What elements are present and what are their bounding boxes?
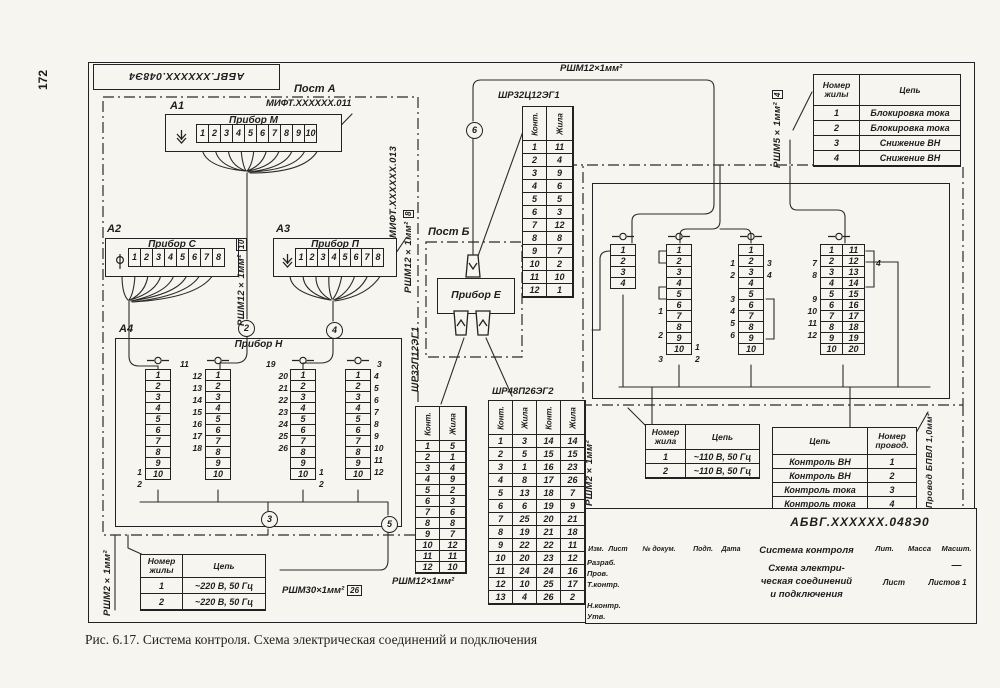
table-cell: 9 bbox=[489, 539, 513, 552]
wire-number bbox=[720, 353, 735, 365]
title-block-scale-value: — bbox=[939, 560, 974, 571]
wire-number bbox=[876, 281, 891, 293]
table-cell: 11 bbox=[489, 565, 513, 578]
table-cell: 1 bbox=[523, 141, 547, 154]
wire-number: 4 bbox=[876, 257, 891, 269]
circle-pin-icon bbox=[114, 254, 126, 270]
wire-number: 3 bbox=[767, 257, 782, 269]
connector-table-shr48: Конт. Жила Конт. Жила 1 3 14 14 2 5 15 1… bbox=[488, 400, 586, 605]
col-header: Конт. bbox=[416, 407, 440, 441]
wire-number bbox=[802, 245, 817, 257]
table-cell: 1 bbox=[416, 441, 440, 452]
table-cell: 13 bbox=[489, 591, 513, 604]
wire-number bbox=[319, 370, 335, 382]
wire-number: 20 bbox=[262, 370, 288, 382]
title-block-scheme-line2: ческая соединений bbox=[747, 576, 866, 587]
wire-number: 24 bbox=[262, 418, 288, 430]
wire-number: 2 bbox=[319, 478, 335, 490]
a4-strip4-right-numbers: 456789101112 bbox=[374, 370, 394, 490]
device-a3-ref: А3 bbox=[276, 223, 290, 235]
a4-strip2: 12345678910 bbox=[205, 370, 231, 480]
table-cell: 3 bbox=[416, 463, 440, 474]
wire-number: 9 bbox=[802, 293, 817, 305]
plug-arrow-icon bbox=[175, 130, 188, 146]
table-header: Номер жилы bbox=[141, 555, 183, 577]
wire-number bbox=[319, 382, 335, 394]
switch-icon bbox=[147, 356, 169, 365]
wire-number bbox=[176, 478, 202, 490]
col-header-text: Жила bbox=[520, 407, 529, 429]
title-block-lit-header: Лит. bbox=[869, 544, 900, 553]
terminal-cell: 8 bbox=[372, 248, 384, 267]
table-cell: 17 bbox=[561, 578, 585, 591]
terminal-cell: 10 bbox=[666, 343, 692, 355]
table-row: 8 8 bbox=[416, 518, 466, 529]
table-cell: 5 bbox=[523, 193, 547, 206]
wire-number: 14 bbox=[176, 394, 202, 406]
cable-junction-4: 4 bbox=[326, 322, 343, 339]
corner-stamp: АБВГ.ХХХХХХ.048Э4 bbox=[93, 64, 280, 90]
a4-strip1-left-numbers: 12 bbox=[126, 370, 142, 490]
wire-number: 10 bbox=[374, 442, 394, 454]
device-a2-ref: А2 bbox=[107, 223, 121, 235]
table-cell: 4 bbox=[489, 474, 513, 487]
wire-number: 17 bbox=[176, 430, 202, 442]
table-row: 2 1 bbox=[416, 452, 466, 463]
table-cell: 1 bbox=[814, 106, 860, 120]
table-cell: 1 bbox=[646, 450, 686, 463]
cable-label-text: РШМ12×1мм² bbox=[236, 254, 247, 326]
wire-number bbox=[319, 394, 335, 406]
device-a1-terminals: 12345678910 bbox=[197, 124, 317, 143]
terminal-cell: 10 bbox=[304, 124, 317, 143]
connector-plug-icon bbox=[464, 254, 482, 278]
table-row: 5 5 bbox=[523, 193, 573, 206]
table-cell: ~110 В, 50 Гц bbox=[686, 464, 759, 477]
table-row: Контроль ВН 2 bbox=[773, 469, 916, 483]
title-block-col-izm: Изм. bbox=[586, 546, 606, 553]
col-header-text: Конт. bbox=[544, 406, 553, 430]
col-header: Жила bbox=[440, 407, 466, 441]
table-control: Цепь Номер провод. Контроль ВН 1 Контрол… bbox=[772, 427, 917, 512]
wire-number: 10 bbox=[802, 305, 817, 317]
title-block-doc-number: АБВГ.ХХХХХХ.048Э0 bbox=[750, 515, 970, 529]
device-a4-title: Прибор Н bbox=[116, 339, 401, 350]
connector-label-text: ШР32П12ЭГ1 bbox=[410, 326, 421, 392]
table-cell: Контроль тока bbox=[773, 483, 868, 496]
device-a1-ref: А1 bbox=[170, 100, 184, 112]
wire-number bbox=[648, 281, 663, 293]
table-cell: 25 bbox=[513, 513, 537, 526]
a4-strip2-head: 11 bbox=[180, 359, 189, 369]
wire-number bbox=[648, 257, 663, 269]
title-block-system: Система контроля bbox=[747, 545, 866, 556]
wire-number bbox=[126, 370, 142, 382]
wire-number: 16 bbox=[176, 418, 202, 430]
table-cell: 13 bbox=[513, 487, 537, 500]
device-a1-doc-label: МИФТ.ХХХХХХ.011 bbox=[266, 98, 351, 109]
table-cell: 1 bbox=[489, 435, 513, 448]
wire-number bbox=[126, 442, 142, 454]
table-cell: 11 bbox=[416, 551, 440, 562]
table-row: 8 8 bbox=[523, 232, 573, 245]
table-cell: 23 bbox=[537, 552, 561, 565]
wire-number bbox=[876, 269, 891, 281]
a4-strip4-head: 3 bbox=[377, 359, 382, 369]
table-row: 2 ~110 В, 50 Гц bbox=[646, 464, 759, 478]
table-row: 11 10 bbox=[523, 271, 573, 284]
table-cell: 19 bbox=[513, 526, 537, 539]
table-cell: Блокировка тока bbox=[860, 121, 960, 135]
table-row: 6 3 bbox=[416, 496, 466, 507]
wire-number: 4 bbox=[720, 305, 735, 317]
title-block-col-doc: № докум. bbox=[630, 546, 688, 553]
table-cell: 7 bbox=[561, 487, 585, 500]
table-row: 3 9 bbox=[523, 167, 573, 180]
wire-number bbox=[319, 454, 335, 466]
table-row: 5 2 bbox=[416, 485, 466, 496]
wire-number bbox=[720, 245, 735, 257]
table-cell: 1 bbox=[547, 284, 573, 297]
table-row: 2 Блокировка тока bbox=[814, 121, 960, 136]
wire-number bbox=[802, 341, 817, 353]
connector-table-body: 1 5 2 1 3 4 4 9 5 2 6 3 7 6 8 8 bbox=[416, 441, 466, 573]
wire-number bbox=[648, 245, 663, 257]
title-block-role-prov: Пров. bbox=[587, 569, 608, 578]
table-row: 6 3 bbox=[523, 206, 573, 219]
terminal-cell: 10 bbox=[290, 468, 316, 480]
wire-number bbox=[767, 293, 782, 305]
cable-label-text: РШМ5×1мм² bbox=[772, 102, 783, 168]
wire-number: 1 bbox=[648, 305, 663, 317]
col-header-text: Конт. bbox=[530, 112, 539, 136]
cable-label-rshm12-top: РШМ12×1мм² bbox=[560, 63, 622, 74]
table-cell: 10 bbox=[489, 552, 513, 565]
table-cell: 6 bbox=[513, 500, 537, 513]
terminal-cell: 10 bbox=[738, 343, 764, 355]
table-cell: Контроль ВН bbox=[773, 455, 868, 468]
title-block-col-list: Лист bbox=[608, 546, 628, 553]
table-cell: 15 bbox=[561, 448, 585, 461]
wire-number: 22 bbox=[262, 394, 288, 406]
table-cell: 4 bbox=[513, 591, 537, 604]
table-body: Контроль ВН 1 Контроль ВН 2 Контроль ток… bbox=[773, 455, 916, 511]
table-cell: 8 bbox=[547, 232, 573, 245]
page-number: 172 bbox=[36, 56, 50, 90]
cable-junction-5: 5 bbox=[381, 516, 398, 533]
table-cell: 20 bbox=[537, 513, 561, 526]
table-row: 2 5 15 15 bbox=[489, 448, 585, 461]
wire-number: 6 bbox=[720, 329, 735, 341]
table-cell: 24 bbox=[513, 565, 537, 578]
wire-number bbox=[262, 478, 288, 490]
table-header: Номер жилы bbox=[814, 75, 860, 105]
wire-number bbox=[802, 281, 817, 293]
wire-number bbox=[767, 353, 782, 365]
table-row: 11 24 24 16 bbox=[489, 565, 585, 578]
table-row: 7 6 bbox=[416, 507, 466, 518]
connector-table-shr32-title: ШР32Ц12ЭГ1 bbox=[498, 90, 560, 101]
table-cell: 7 bbox=[416, 507, 440, 518]
cable-qty-box: 4 bbox=[772, 90, 783, 99]
wire-number: 6 bbox=[374, 394, 394, 406]
table-cell: 4 bbox=[814, 151, 860, 165]
table-row: 9 7 bbox=[523, 245, 573, 258]
right-strip3-right-numbers: 34 bbox=[767, 245, 782, 365]
table-cell: 7 bbox=[440, 529, 466, 540]
table-cell: 12 bbox=[547, 219, 573, 232]
table-cell: 1 bbox=[440, 452, 466, 463]
table-cell: 10 bbox=[547, 271, 573, 284]
connector-label-shr32p: ШР32П12ЭГ1 bbox=[410, 297, 421, 392]
cable-label-text: РШМ2×1мм² bbox=[102, 550, 113, 616]
a4-strip3-left-numbers: 20212223242526 bbox=[262, 370, 288, 490]
title-block-role-nkontr: Н.контр. bbox=[587, 601, 621, 610]
title-block-col-podp: Подп. bbox=[690, 546, 716, 553]
table-row: 3 Снижение ВН bbox=[814, 136, 960, 151]
wire-number: 9 bbox=[374, 430, 394, 442]
wire-number bbox=[176, 466, 202, 478]
table-cell: 4 bbox=[547, 154, 573, 167]
table-header: Цепь bbox=[860, 75, 960, 105]
cable-qty-box: 8 bbox=[403, 210, 414, 219]
a4-strip3-head: 19 bbox=[266, 359, 275, 369]
table-cell: 12 bbox=[489, 578, 513, 591]
wire-number: 2 bbox=[695, 353, 710, 365]
col-header-text: Жила bbox=[555, 113, 564, 135]
cable-label-rshm5-4: РШМ5×1мм² 4 bbox=[772, 64, 783, 168]
table-cell: 9 bbox=[547, 167, 573, 180]
table-cell: 16 bbox=[561, 565, 585, 578]
table-cell: 23 bbox=[561, 461, 585, 474]
wire-number: 11 bbox=[802, 317, 817, 329]
a4-strip4: 12345678910 bbox=[345, 370, 371, 480]
wire-number: 5 bbox=[374, 382, 394, 394]
table-cell: 21 bbox=[561, 513, 585, 526]
wire-number bbox=[767, 305, 782, 317]
table-row: 1 5 bbox=[416, 441, 466, 452]
table-cell: 21 bbox=[537, 526, 561, 539]
table-row: 10 2 bbox=[523, 258, 573, 271]
connector-table-shr48-title: ШР48П26ЭГ2 bbox=[492, 386, 554, 397]
table-cell: 8 bbox=[523, 232, 547, 245]
table-blocking: Номер жилы Цепь 1 Блокировка тока 2 Блок… bbox=[813, 74, 961, 167]
table-cell: 2 bbox=[523, 154, 547, 167]
cable-qty-box: 26 bbox=[347, 585, 362, 596]
wire-number: 2 bbox=[126, 478, 142, 490]
wire-number bbox=[876, 245, 891, 257]
device-a3-box: Прибор П 12345678 bbox=[273, 238, 397, 277]
table-cell: 11 bbox=[561, 539, 585, 552]
table-cell: 3 bbox=[523, 167, 547, 180]
table-cell: 25 bbox=[537, 578, 561, 591]
table-cell: 3 bbox=[547, 206, 573, 219]
cable-label-rshm12-bottom: РШМ12×1мм² bbox=[392, 576, 454, 587]
table-cell: 16 bbox=[537, 461, 561, 474]
wire-number: 12 bbox=[374, 466, 394, 478]
table-cell: 3 bbox=[814, 136, 860, 150]
table-cell: 11 bbox=[523, 271, 547, 284]
wire-number bbox=[695, 329, 710, 341]
table-cell: 8 bbox=[416, 518, 440, 529]
table-header: Цепь bbox=[773, 428, 868, 454]
table-row: 1 ~110 В, 50 Гц bbox=[646, 450, 759, 464]
table-cell: 7 bbox=[489, 513, 513, 526]
wire-number: 1 bbox=[319, 466, 335, 478]
table-cell: 11 bbox=[440, 551, 466, 562]
col-header: Жила bbox=[561, 401, 585, 435]
wire-number bbox=[126, 430, 142, 442]
table-cell: 24 bbox=[537, 565, 561, 578]
wire-number bbox=[126, 454, 142, 466]
terminal-cell: 10 bbox=[145, 468, 171, 480]
table-cell: 9 bbox=[561, 500, 585, 513]
table-row: 4 8 17 26 bbox=[489, 474, 585, 487]
col-header: Конт. bbox=[537, 401, 561, 435]
table-cell: 19 bbox=[537, 500, 561, 513]
table-cell: 7 bbox=[523, 219, 547, 232]
table-cell: 6 bbox=[523, 206, 547, 219]
post-b-label: Пост Б bbox=[428, 226, 469, 238]
col-header: Жила bbox=[547, 107, 573, 141]
cable-label-rshm30-26: РШМ30×1мм² 26 bbox=[282, 585, 362, 596]
wire-number bbox=[695, 293, 710, 305]
wire-number bbox=[767, 245, 782, 257]
table-cell: 2 bbox=[440, 485, 466, 496]
table-cell: 18 bbox=[561, 526, 585, 539]
terminal-cell: 4 bbox=[610, 277, 636, 289]
col-header-text: Конт. bbox=[423, 412, 432, 436]
terminal-cell: 10 bbox=[205, 468, 231, 480]
wire-number: 2 bbox=[720, 269, 735, 281]
table-cell: 20 bbox=[513, 552, 537, 565]
a4-strip2-left-numbers: 12131415161718 bbox=[176, 370, 202, 490]
table-cell: 26 bbox=[537, 591, 561, 604]
terminal-cell: 20 bbox=[842, 343, 865, 355]
wire-number bbox=[262, 454, 288, 466]
table-cell: 2 bbox=[646, 464, 686, 477]
table-cell: 2 bbox=[868, 469, 916, 482]
table-cell: 12 bbox=[440, 540, 466, 551]
wire-number: 4 bbox=[374, 370, 394, 382]
table-cell: 1 bbox=[868, 455, 916, 468]
connector-table-body: 1 11 2 4 3 9 4 6 5 5 6 3 7 12 8 bbox=[523, 141, 573, 297]
wire-number: 13 bbox=[176, 382, 202, 394]
title-block-scheme-line1: Схема электри- bbox=[747, 563, 866, 574]
post-a-label: Пост А bbox=[294, 83, 336, 95]
table-cell: 6 bbox=[489, 500, 513, 513]
wire-number: 3 bbox=[720, 293, 735, 305]
table-cell: 8 bbox=[513, 474, 537, 487]
table-cell: ~220 В, 50 Гц bbox=[183, 594, 265, 609]
device-a1-box: Прибор М 12345678910 bbox=[165, 114, 342, 152]
table-row: 4 9 bbox=[416, 474, 466, 485]
wire-number: 4 bbox=[767, 269, 782, 281]
table-cell: 3 bbox=[440, 496, 466, 507]
table-cell: 4 bbox=[440, 463, 466, 474]
col-header-text: Конт. bbox=[496, 406, 505, 430]
cable-junction-6: 6 bbox=[466, 122, 483, 139]
a4-strip1: 12345678910 bbox=[145, 370, 171, 480]
table-cell: 6 bbox=[547, 180, 573, 193]
table-cell: 5 bbox=[440, 441, 466, 452]
table-cell: Контроль ВН bbox=[773, 469, 868, 482]
wire-number bbox=[876, 317, 891, 329]
wire-number bbox=[720, 341, 735, 353]
table-row: 10 20 23 12 bbox=[489, 552, 585, 565]
table-row: 1 11 bbox=[523, 141, 573, 154]
table-110v: Номер жила Цепь 1 ~110 В, 50 Гц 2 ~110 В… bbox=[645, 424, 760, 479]
table-cell: 3 bbox=[868, 483, 916, 496]
wire-number: 7 bbox=[802, 257, 817, 269]
connector-table-12pin: Конт. Жила 1 5 2 1 3 4 4 9 5 2 6 3 bbox=[415, 406, 467, 574]
device-a4-ref: А4 bbox=[119, 323, 133, 335]
table-cell: 8 bbox=[489, 526, 513, 539]
table-row: 5 13 18 7 bbox=[489, 487, 585, 500]
title-block-scale-header: Масшт. bbox=[939, 544, 974, 553]
table-cell: 18 bbox=[537, 487, 561, 500]
table-cell: 2 bbox=[547, 258, 573, 271]
table-row: 12 10 25 17 bbox=[489, 578, 585, 591]
wire-number bbox=[767, 341, 782, 353]
table-header: Номер провод. bbox=[868, 428, 916, 454]
wire-number bbox=[767, 329, 782, 341]
table-cell: 12 bbox=[416, 562, 440, 573]
table-cell: 7 bbox=[547, 245, 573, 258]
switch-icon bbox=[828, 232, 850, 241]
connector-plug-icon bbox=[452, 310, 470, 336]
connector-table-body: 1 3 14 14 2 5 15 15 3 1 16 23 4 8 17 26 … bbox=[489, 435, 585, 604]
wire-number bbox=[126, 406, 142, 418]
table-cell: 22 bbox=[537, 539, 561, 552]
wire-number: 18 bbox=[176, 442, 202, 454]
wire-number: 8 bbox=[802, 269, 817, 281]
switch-icon bbox=[292, 356, 314, 365]
cable-label-rshm12-8: РШМ12×1мм² 8 bbox=[403, 168, 414, 293]
table-row: 7 12 bbox=[523, 219, 573, 232]
cable-qty-box: 10 bbox=[236, 238, 247, 252]
figure-caption: Рис. 6.17. Система контроля. Схема элект… bbox=[85, 632, 537, 648]
table-row: 10 12 bbox=[416, 540, 466, 551]
wire-number bbox=[648, 341, 663, 353]
wire-number bbox=[720, 281, 735, 293]
corner-stamp-number: АБВГ.ХХХХХХ.048Э4 bbox=[94, 65, 279, 87]
table-cell: 26 bbox=[561, 474, 585, 487]
right-strip3-left-numbers: 123456 bbox=[720, 245, 735, 365]
a4-strip3-right-numbers: 12 bbox=[319, 370, 335, 490]
doc-label-mift013: МИФТ.ХХХХХХ.013 bbox=[388, 106, 399, 238]
wire-number bbox=[695, 257, 710, 269]
table-cell: Снижение ВН bbox=[860, 151, 960, 165]
wire-number bbox=[695, 305, 710, 317]
table-cell: 2 bbox=[416, 452, 440, 463]
table-row: Контроль ВН 1 bbox=[773, 455, 916, 469]
wire-number: 2 bbox=[648, 329, 663, 341]
wire-number bbox=[319, 418, 335, 430]
wire-number: 11 bbox=[374, 454, 394, 466]
drawing-page: 172 АБВГ.ХХХХХХ.048Э4 Пост А А1 МИФТ.ХХХ… bbox=[0, 0, 1000, 688]
table-row: 8 19 21 18 bbox=[489, 526, 585, 539]
table-cell: 12 bbox=[561, 552, 585, 565]
wire-number bbox=[648, 269, 663, 281]
table-cell: ~110 В, 50 Гц bbox=[686, 450, 759, 463]
table-row: 1 Блокировка тока bbox=[814, 106, 960, 121]
table-row: 3 4 bbox=[416, 463, 466, 474]
wire-number bbox=[648, 293, 663, 305]
wire-number: 12 bbox=[802, 329, 817, 341]
title-block-role-tkontr: Т.контр. bbox=[587, 580, 620, 589]
table-cell: 2 bbox=[561, 591, 585, 604]
